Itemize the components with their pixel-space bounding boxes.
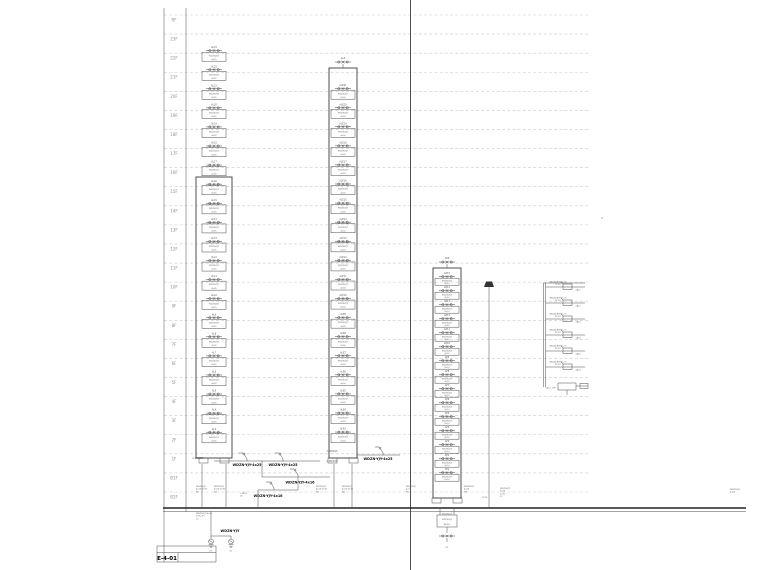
- detail-branch-spec2: PC20: [555, 364, 561, 366]
- panel-cable: WDZN-YJY: [442, 294, 453, 296]
- drawing-sheet: RF23F22F21F20F19F18F17F16F15F14F13F12F11…: [0, 0, 760, 570]
- detail-branch-tag: 1AL4: [575, 336, 581, 339]
- panel-cable: WDZN-YJY: [442, 392, 453, 394]
- panel-name: AP4: [445, 426, 450, 429]
- floor-label: 13F: [170, 227, 178, 232]
- panel-cable: WDZN-YJY: [209, 93, 220, 95]
- panel-name: AL3: [212, 428, 217, 431]
- panel-cable: WDZN-YJY: [442, 448, 453, 450]
- panel-cable: WDZN-YJY: [338, 150, 349, 152]
- ug-panel-line: AP-B2: [444, 523, 451, 526]
- panel-name: ALE14: [339, 218, 347, 221]
- panel-name: AL7: [212, 351, 217, 354]
- panel-name: AL22: [211, 65, 217, 68]
- panel-cable: WDZN-YJY: [338, 379, 349, 381]
- annotation-line: WDZN-YJY: [500, 488, 511, 490]
- panel-cable: WDZN-YJY: [338, 246, 349, 248]
- annotation-line: WDZN-YJY: [316, 486, 327, 488]
- panel-cable: WDZN-YJY: [442, 322, 453, 324]
- panel-spec: 4x10: [444, 437, 450, 439]
- floor-label: 15F: [170, 189, 178, 194]
- panel-name: ALE3: [340, 428, 346, 431]
- floor-label: B1F: [170, 475, 178, 480]
- annotation-line: 4x25-SC32: [316, 489, 328, 491]
- branch-switch: [381, 449, 383, 453]
- panel-spec: 4x10: [444, 367, 450, 369]
- panel-name: AP1: [445, 468, 450, 471]
- panel-name: AL13: [211, 237, 217, 240]
- panel-name: AP14: [444, 286, 450, 289]
- panel-name: AP3: [445, 440, 450, 443]
- earth-tag: E1: [210, 551, 213, 553]
- panel-cable: WDZN-YJY: [338, 303, 349, 305]
- floor-label: 17F: [170, 151, 178, 156]
- panel-spec: 4x25: [211, 288, 217, 290]
- floor-label: 3F: [172, 418, 178, 423]
- annotation-line: 4x25-SC32: [214, 489, 226, 491]
- annotation-line: 25: [240, 496, 243, 498]
- panel-spec: 4x16: [340, 345, 346, 347]
- floor-label: 2F: [172, 437, 178, 442]
- floor-label: 9F: [172, 304, 178, 309]
- panel-name: AP9: [445, 356, 450, 359]
- annotation-line: N4: [342, 491, 346, 493]
- panel-spec: 4x16: [340, 135, 346, 137]
- panel-spec: 4x25: [211, 192, 217, 194]
- panel-name: ALE15: [339, 199, 347, 202]
- panel-cable: WDZN-YJY: [442, 336, 453, 338]
- panel-cable: WDZN-YJY: [442, 476, 453, 478]
- panel-cable: WDZN-YJY: [209, 55, 220, 57]
- panel-cable: WDZN-YJY: [338, 341, 349, 343]
- feeder-cable-label: WDZN-YJY-4x25: [232, 463, 262, 467]
- panel-cable: WDZN-YJY: [209, 361, 220, 363]
- annotation-line: SC32: [500, 493, 506, 495]
- detail-source-box: [558, 383, 576, 390]
- riser-diagram-canvas: RF23F22F21F20F19F18F17F16F15F14F13F12F11…: [0, 0, 760, 570]
- floor-label: 14F: [170, 208, 178, 213]
- panel-spec: 4x10: [444, 339, 450, 341]
- panel-name: AL15: [211, 199, 217, 202]
- generated-drawing: RF23F22F21F20F19F18F17F16F15F14F13F12F11…: [163, 0, 746, 570]
- panel-spec: 4x16: [340, 230, 346, 232]
- panel-cable: WDZN-YJY: [338, 284, 349, 286]
- annotation-line: N2: [214, 491, 218, 493]
- panel-spec: 4x25: [211, 59, 217, 61]
- panel-name: AL23: [211, 46, 217, 49]
- annotation-line: WDZN-YJY: [196, 486, 207, 488]
- earth-cable-label: WDZN-YJY: [221, 529, 240, 533]
- annotation-line: WDZN-YJY: [214, 486, 225, 488]
- panel-name: AP5: [445, 412, 450, 415]
- floor-label: B2F: [170, 495, 178, 500]
- panel-name: AL19: [211, 123, 217, 126]
- annotation-line: 4x25-SC32: [342, 489, 354, 491]
- annotation-line: N1: [196, 491, 200, 493]
- panel-cable: WDZN-YJY: [338, 93, 349, 95]
- panel-name: ALE19: [339, 122, 347, 125]
- panel-name: AL11: [211, 275, 217, 278]
- riser-head-label: APZ: [445, 257, 450, 260]
- annotation-line: 4x25-SC32: [196, 489, 208, 491]
- panel-spec: 4x10: [444, 297, 450, 299]
- panel-name: AL8: [212, 332, 217, 335]
- branch-circle: [294, 469, 296, 471]
- panel-spec: 4x10: [444, 465, 450, 467]
- panel-spec: 4x16: [340, 192, 346, 194]
- detail-branch-spec2: PC20: [555, 284, 561, 286]
- detail-branch-tag: 1AL5: [575, 352, 581, 355]
- panel-name: ALE6: [340, 370, 346, 373]
- title-block: E-4-01: [157, 546, 216, 562]
- floor-label: 12F: [170, 246, 178, 251]
- panel-cable: WDZN-YJY: [338, 112, 349, 114]
- panel-spec: 4x10: [444, 395, 450, 397]
- floor-label: 1F: [172, 456, 178, 461]
- panel-name: ALE18: [339, 141, 347, 144]
- panel-cable: WDZN-YJY: [209, 437, 220, 439]
- floor-label: 4F: [172, 399, 178, 404]
- panel-spec: 4x25: [211, 154, 217, 156]
- panel-cable: WDZN-YJY: [209, 341, 220, 343]
- annotation-line: WDZN-YJY: [730, 489, 741, 491]
- detail-source-label: 1AL-1 (2F): [545, 387, 556, 390]
- panel-spec: 4x25: [211, 364, 217, 366]
- panel-cable: WDZN-YJY: [442, 420, 453, 422]
- stray-mark: 1: [601, 217, 603, 220]
- panel-cable: WDZN-YJY: [338, 437, 349, 439]
- detail-branch-spec2: PC20: [555, 332, 561, 334]
- panel-spec: 4x25: [211, 135, 217, 137]
- panel-name: AP13: [444, 300, 450, 303]
- annotation-line: C-WDZ: [240, 493, 248, 495]
- panel-spec: 4x10: [444, 381, 450, 383]
- panel-name: AP15: [444, 272, 450, 275]
- panel-name: ALE10: [339, 294, 347, 297]
- panel-cable: WDZN-YJY: [209, 399, 220, 401]
- floor-label: 10F: [170, 285, 178, 290]
- panel-spec: 4x16: [340, 116, 346, 118]
- panel-name: AL20: [211, 103, 217, 106]
- panel-spec: 4x25: [211, 383, 217, 385]
- panel-spec: 4x16: [340, 440, 346, 442]
- panel-name: AL9: [212, 313, 217, 316]
- panel-cable: WDZN-YJY: [209, 227, 220, 229]
- panel-cable: WDZN-YJY: [442, 364, 453, 366]
- panel-name: AL10: [211, 294, 217, 297]
- wire-note: C-WDZ25: [327, 460, 338, 463]
- floor-label: 11F: [170, 266, 178, 271]
- panel-name: AL12: [211, 256, 217, 259]
- panel-spec: 4x25: [211, 345, 217, 347]
- panel-name: ALE8: [340, 332, 346, 335]
- branch-switch: [281, 455, 283, 459]
- panel-name: ALE12: [339, 256, 347, 259]
- panel-spec: 4x16: [340, 154, 346, 156]
- panel-spec: 4x16: [340, 307, 346, 309]
- detail-branch-spec2: PC20: [555, 348, 561, 350]
- panel-name: AL21: [211, 84, 217, 87]
- panel-cable: WDZN-YJY: [338, 170, 349, 172]
- panel-spec: 4x10: [444, 451, 450, 453]
- panel-name: AL14: [211, 218, 217, 221]
- panel-cable: WDZN-YJY: [209, 380, 220, 382]
- detail-branch-tag: 1AL6: [575, 368, 581, 371]
- riser-foot: [432, 498, 441, 503]
- panel-spec: 4x10: [444, 479, 450, 481]
- feeder-cable-label: WDZN-YJY-4x25: [268, 463, 298, 467]
- annotation-line: 4x25: [464, 489, 470, 491]
- annotation-line: x2: [196, 518, 199, 520]
- floor-label: 5F: [172, 380, 178, 385]
- panel-cable: WDZN-YJY: [442, 308, 453, 310]
- detail-branch-tag: 1AL2: [575, 304, 581, 307]
- panel-name: AL16: [211, 180, 217, 183]
- panel-cable: WDZN-YJY: [338, 189, 349, 191]
- panel-spec: 4x10: [444, 283, 450, 285]
- panel-spec: 4x25: [211, 421, 217, 423]
- panel-name: AL17: [211, 161, 217, 164]
- panel-cable: WDZN-YJY: [209, 112, 220, 114]
- panel-spec: 4x25: [211, 211, 217, 213]
- ug-earth-tag: E3: [446, 547, 449, 549]
- panel-name: AL18: [211, 142, 217, 145]
- panel-name: AP11: [444, 328, 450, 331]
- annotation-line: WDZN-YJY: [406, 486, 417, 488]
- branch-circle: [379, 447, 381, 449]
- panel-cable: WDZN-YJY: [338, 265, 349, 267]
- earth-hatch: [229, 540, 233, 543]
- panel-spec: 4x16: [340, 402, 346, 404]
- riser-head-label: ALZ: [341, 57, 346, 60]
- panel-cable: WDZN-YJY: [442, 280, 453, 282]
- panel-cable: WDZN-YJY: [209, 208, 220, 210]
- panel-name: AP7: [445, 384, 450, 387]
- panel-spec: 4x25: [211, 116, 217, 118]
- panel-cable: WDZN-YJY: [442, 378, 453, 380]
- floor-label: 19F: [170, 113, 178, 118]
- floor-label: 23F: [170, 37, 178, 42]
- panel-cable: WDZN-YJY: [442, 434, 453, 436]
- panel-spec: 4x10: [444, 353, 450, 355]
- panel-cable: WDZN-YJY: [442, 462, 453, 464]
- floor-label: RF: [171, 18, 177, 23]
- floor-label: 6F: [172, 361, 178, 366]
- feeder-cable-label: WDZN-YJY-4x16: [285, 481, 315, 485]
- panel-cable: WDZN-YJY: [338, 208, 349, 210]
- panel-spec: 4x25: [211, 269, 217, 271]
- wire-note: C-WDZ25: [193, 457, 204, 460]
- riser-foot: [349, 458, 358, 463]
- panel-name: AP6: [445, 398, 450, 401]
- panel-spec: 4x25: [211, 440, 217, 442]
- panel-cable: WDZN-YJY: [209, 151, 220, 153]
- annotation-line: N3: [316, 491, 320, 493]
- panel-spec: 4x16: [340, 364, 346, 366]
- annotation-line: SC32-FC: [196, 516, 205, 518]
- drawing-number: E-4-01: [157, 556, 177, 562]
- floor-label: 22F: [170, 56, 178, 61]
- panel-spec: 4x16: [340, 97, 346, 99]
- panel-spec: 4x10: [444, 409, 450, 411]
- panel-name: AP8: [445, 370, 450, 373]
- annotation-line: WDZN-YJY-4x25: [196, 513, 213, 515]
- panel-spec: 4x10: [444, 325, 450, 327]
- earth-tag: E2: [230, 551, 233, 553]
- panel-cable: WDZN-YJY: [442, 350, 453, 352]
- panel-spec: 4x25: [211, 326, 217, 328]
- panel-cable: WDZN-YJY: [209, 74, 220, 76]
- panel-spec: 4x16: [340, 249, 346, 251]
- panel-name: ALE16: [339, 180, 347, 183]
- panel-cable: WDZN-YJY: [209, 418, 220, 420]
- panel-spec: 4x25: [211, 97, 217, 99]
- annotation-line: 4x25: [406, 489, 412, 491]
- panel-name: ALE20: [339, 103, 347, 106]
- panel-name: AL6: [212, 371, 217, 374]
- panel-name: ALE11: [339, 275, 347, 278]
- panel-spec: 4x16: [340, 383, 346, 385]
- panel-spec: 4x16: [340, 269, 346, 271]
- panel-spec: 4x16: [340, 173, 346, 175]
- panel-spec: 4x25: [211, 173, 217, 175]
- panel-name: ALE13: [339, 237, 347, 240]
- panel-spec: 4x25: [211, 307, 217, 309]
- panel-name: AL4: [212, 409, 217, 412]
- annotation-line: N6: [464, 491, 468, 493]
- panel-cable: WDZN-YJY: [209, 132, 220, 134]
- annotation-line: 4x25: [730, 492, 736, 494]
- panel-name: ALE5: [340, 389, 346, 392]
- panel-cable: WDZN-YJY: [338, 399, 349, 401]
- floor-label: 16F: [170, 170, 178, 175]
- panel-cable: WDZN-YJY: [209, 170, 220, 172]
- panel-name: ALE9: [340, 313, 346, 316]
- riser-foot: [453, 498, 462, 503]
- panel-cable: WDZN-YJY: [442, 406, 453, 408]
- panel-spec: 4x16: [340, 288, 346, 290]
- branch-circle: [270, 482, 272, 484]
- panel-cable: WDZN-YJY: [338, 227, 349, 229]
- panel-spec: 4x16: [340, 211, 346, 213]
- earth-hatch: [209, 540, 213, 543]
- panel-name: ALE21: [339, 84, 347, 87]
- panel-name: AP10: [444, 342, 450, 345]
- panel-cable: WDZN-YJY: [338, 322, 349, 324]
- annotation-line: 4x25: [500, 491, 506, 493]
- panel-cable: WDZN-YJY: [209, 189, 220, 191]
- panel-spec: 4x25: [211, 402, 217, 404]
- annotation-line: FC: [500, 496, 503, 498]
- feeder-cable-label: WDZN-YJY-4x25: [363, 457, 393, 461]
- panel-spec: 4x25: [211, 231, 217, 233]
- panel-cable: WDZN-YJY: [338, 360, 349, 362]
- panel-spec: 4x10: [444, 423, 450, 425]
- annotation-line: WDZN-YJY: [464, 486, 475, 488]
- annotation-line: SC25: [482, 497, 488, 499]
- panel-spec: 4x25: [211, 78, 217, 80]
- detail-branch-spec2: PC20: [555, 300, 561, 302]
- floor-label: 20F: [170, 94, 178, 99]
- panel-name: ALE4: [340, 409, 346, 412]
- annotation-line: WDZN-YJY: [342, 486, 353, 488]
- detail-branch-spec2: PC20: [555, 316, 561, 318]
- annotation-line: N5: [406, 491, 410, 493]
- panel-cable: WDZN-YJY: [209, 284, 220, 286]
- panel-name: AP12: [444, 314, 450, 317]
- branch-switch: [272, 484, 274, 488]
- panel-cable: WDZN-YJY: [209, 246, 220, 248]
- detail-branch-tag: 1AL1: [575, 288, 581, 291]
- floor-label: 8F: [172, 323, 178, 328]
- panel-name: ALE7: [340, 351, 346, 354]
- floor-label: 18F: [170, 132, 178, 137]
- ug-panel-line: WDZN-YJY: [442, 519, 453, 521]
- panel-cable: WDZN-YJY: [338, 418, 349, 420]
- branch-switch: [245, 455, 247, 459]
- panel-cable: WDZN-YJY: [209, 322, 220, 324]
- panel-spec: 4x25: [211, 250, 217, 252]
- panel-cable: WDZN-YJY: [338, 131, 349, 133]
- panel-name: AL5: [212, 390, 217, 393]
- floor-label: 7F: [172, 342, 178, 347]
- panel-spec: 4x16: [340, 326, 346, 328]
- panel-spec: 4x16: [340, 421, 346, 423]
- panel-cable: WDZN-YJY: [209, 303, 220, 305]
- wire-note: C-WDZ25: [327, 450, 338, 453]
- floor-label: 21F: [170, 75, 178, 80]
- panel-cable: WDZN-YJY: [209, 265, 220, 267]
- panel-spec: 4x10: [444, 311, 450, 313]
- detail-branch-tag: 1AL3: [575, 320, 581, 323]
- panel-name: AP2: [445, 454, 450, 457]
- panel-name: ALE17: [339, 161, 347, 164]
- riser-foot: [220, 458, 229, 463]
